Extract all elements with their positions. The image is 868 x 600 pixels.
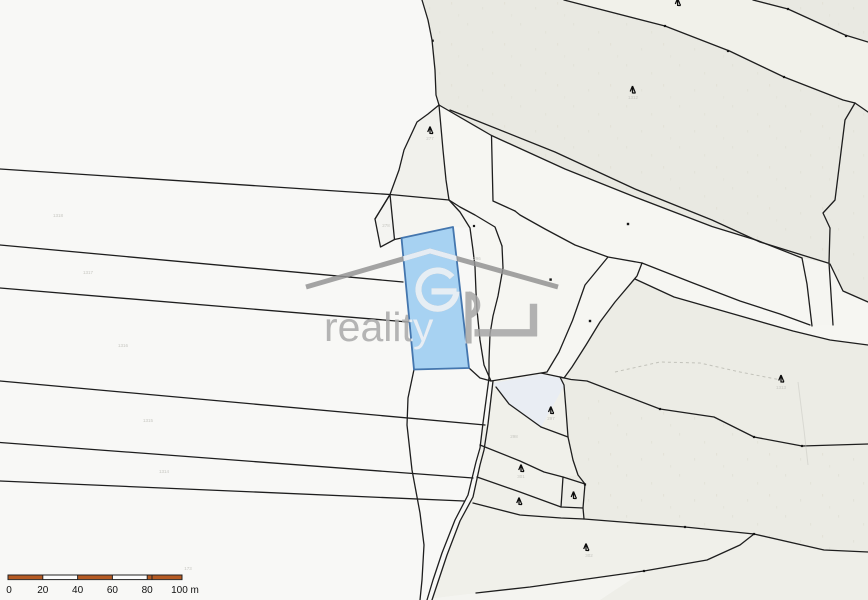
svg-text:80: 80 <box>142 585 154 596</box>
svg-text:1318: 1318 <box>53 213 64 218</box>
svg-text:1313: 1313 <box>776 385 787 390</box>
svg-text:298: 298 <box>510 434 518 439</box>
svg-text:302: 302 <box>585 553 593 558</box>
svg-text:277: 277 <box>426 136 434 141</box>
svg-text:0: 0 <box>6 585 12 596</box>
svg-text:297: 297 <box>547 416 555 421</box>
svg-text:1312: 1312 <box>628 95 639 100</box>
svg-text:1316: 1316 <box>118 343 129 348</box>
svg-text:1315: 1315 <box>143 418 154 423</box>
svg-text:296: 296 <box>473 256 481 261</box>
svg-text:100 m: 100 m <box>171 585 199 596</box>
svg-text:173: 173 <box>184 566 192 571</box>
svg-text:1314: 1314 <box>159 469 170 474</box>
svg-text:278: 278 <box>382 223 390 228</box>
svg-text:20: 20 <box>37 585 49 596</box>
svg-text:1317: 1317 <box>83 270 94 275</box>
svg-text:60: 60 <box>107 585 119 596</box>
svg-text:40: 40 <box>72 585 84 596</box>
svg-text:301: 301 <box>517 474 525 479</box>
